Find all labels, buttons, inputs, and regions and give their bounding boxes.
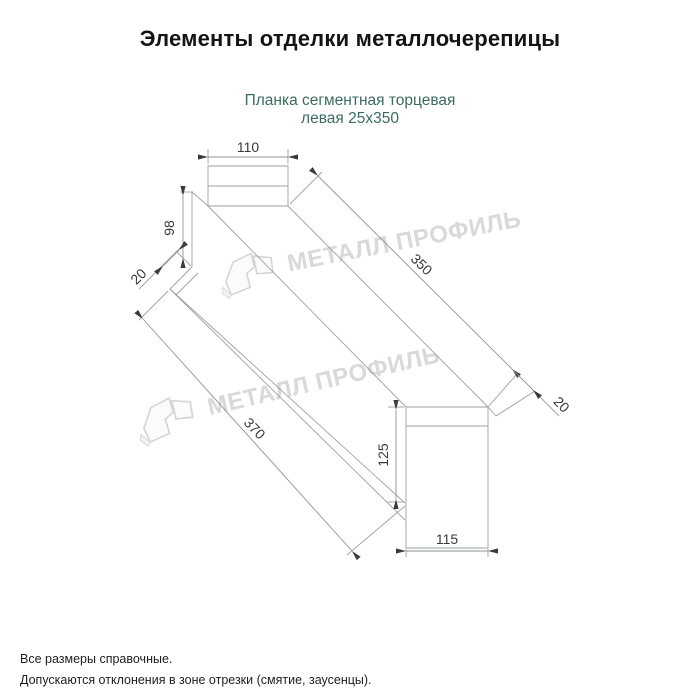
technical-drawing: 110 98 20 350 20 370 125 115 xyxy=(0,0,700,700)
dim-label-115: 115 xyxy=(436,531,459,547)
dim-label-125: 125 xyxy=(375,443,391,467)
dim-label-370: 370 xyxy=(241,414,269,442)
strip-outline xyxy=(170,166,535,548)
dimension-lines xyxy=(143,157,533,551)
dim-label-98: 98 xyxy=(161,220,177,236)
dim-label-20-left: 20 xyxy=(127,265,149,287)
dim-label-110: 110 xyxy=(237,139,260,155)
footer-note-2: Допускаются отклонения в зоне отрезки (с… xyxy=(20,670,680,691)
dim-label-20-right: 20 xyxy=(551,393,573,415)
footer-notes: Все размеры справочные. Допускаются откл… xyxy=(20,649,680,691)
footer-note-1: Все размеры справочные. xyxy=(20,649,680,670)
dimension-labels: 110 98 20 350 20 370 125 115 xyxy=(127,139,573,547)
dim-label-350: 350 xyxy=(408,250,436,278)
